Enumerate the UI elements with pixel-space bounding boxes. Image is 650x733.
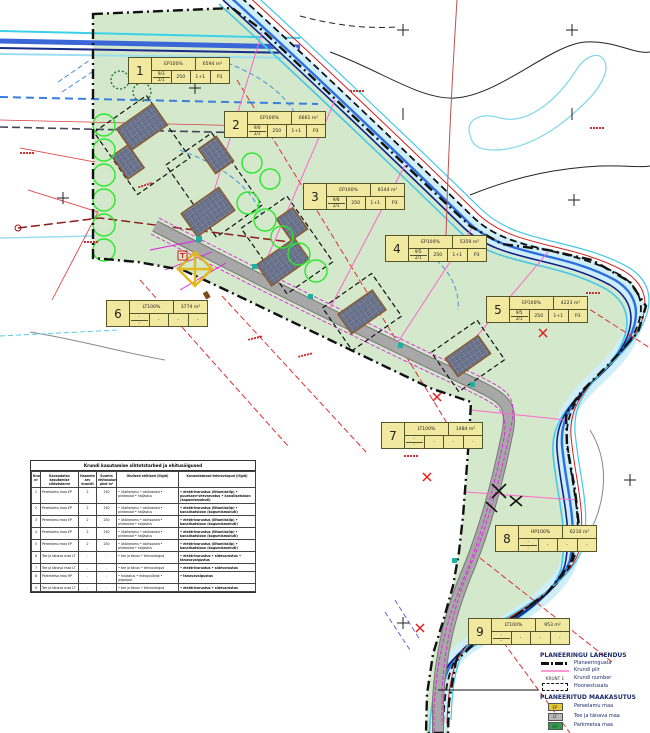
table-row: 3 Pereelamu maa EP 2 250 • üksikelamu • … — [32, 516, 256, 528]
col-header: Hoonete arv krundil — [79, 472, 97, 488]
legend-landuse-item: EP Pereelamu maa — [540, 703, 648, 711]
table-row: 1 Pereelamu maa EP 2 250 • üksikelamu • … — [32, 488, 256, 504]
cell-plot-nr: 5 — [32, 540, 41, 552]
legend-item-plot-number: KRUNT 1 Krundi number — [540, 676, 648, 682]
plot-label-5: 5 EP100%4223 m² 9/52/12501+1P3 — [486, 296, 588, 323]
cadastral-annotation — [404, 455, 419, 457]
cell-networks: • elektrivarustus • sidevarustus • tänav… — [179, 552, 256, 564]
table-row: 7 Tee ja tänava maa LT - - • tee ja täna… — [32, 564, 256, 572]
col-header: Kavandatav kasutamise sihtotstarve — [41, 472, 79, 488]
table-row: 9 Tee ja tänava maa LT - - • tee ja täna… — [32, 584, 256, 592]
cell-count: 2 — [79, 528, 97, 540]
landuse-color-box: EP — [548, 703, 563, 711]
col-header: Kavandatavad tehnovõrgud (liigid) — [179, 472, 256, 488]
cell-plot-nr: 8 — [32, 572, 41, 584]
plot-number: 6 — [107, 301, 130, 326]
cadastral-annotation — [84, 241, 99, 243]
legend-landuse-title: PLANEERITUD MAAKASUTUS — [540, 695, 648, 702]
table-row: 2 Pereelamu maa EP 2 250 • üksikelamu • … — [32, 504, 256, 516]
cell-buildings: • üksikelamu • abihooned • piirdeaiad • … — [117, 504, 179, 516]
cell-buildings: • tee ja tänav • tehnovõrgud — [117, 584, 179, 592]
table-row: 4 Pereelamu maa EP 2 250 • üksikelamu • … — [32, 528, 256, 540]
cell-count: - — [79, 564, 97, 572]
cell-networks: • elektrivarustus (liitumiskilp) • kanal… — [179, 516, 256, 528]
plot-number: 7 — [382, 423, 405, 448]
cell-plot-nr: 6 — [32, 552, 41, 564]
table-row: 8 Parkmetsa maa HP - - • haljastus • män… — [32, 572, 256, 584]
table-row: 5 Pereelamu maa EP 2 250 • üksikelamu • … — [32, 540, 256, 552]
plot-label-9: 9 LT100%953 m² ----- — [468, 618, 570, 645]
cell-area: - — [97, 564, 117, 572]
plot-label-7: 7 LT100%1484 m² ----- — [381, 422, 483, 449]
detailed-plan-drawing: 1 EP100%6594 m² 9/32/12501+1P1 2 EP100%6… — [0, 0, 650, 733]
cell-buildings: • üksikelamu • abihooned • piirdeaiad • … — [117, 540, 179, 552]
cell-use: Pereelamu maa EP — [41, 504, 79, 516]
plot-label-1: 1 EP100%6594 m² 9/32/12501+1P1 — [128, 57, 230, 84]
cell-use: Tee ja tänava maa LT — [41, 564, 79, 572]
cell-count: 2 — [79, 504, 97, 516]
cell-networks: • tänavavalgustus — [179, 572, 256, 584]
ditch-dashed — [0, 330, 118, 336]
cell-area: - — [97, 584, 117, 592]
cadastral-annotation — [350, 90, 365, 92]
legend-item-building-area: Hoonestusala — [540, 683, 648, 691]
cell-networks: • elektrivarustus • sidevarustus — [179, 564, 256, 572]
cell-use: Tee ja tänava maa LT — [41, 584, 79, 592]
plot-number: 8 — [496, 526, 519, 551]
left-cyan-line — [0, 236, 95, 238]
col-header: Krundi nr — [32, 472, 41, 488]
boundary-line-icon — [541, 662, 569, 665]
plot-number-symbol: KRUNT 1 — [540, 676, 570, 681]
cell-area: 250 — [97, 540, 117, 552]
plot-label-8: 8 HP100%6210 m² ----- — [495, 525, 597, 552]
pond-outline — [469, 55, 606, 150]
building-rights-table: Krundi kasutamise sihtotstarbed ja ehitu… — [30, 460, 256, 593]
cell-use: Tee ja tänava maa LT — [41, 552, 79, 564]
landuse-color-box: HP — [548, 722, 563, 730]
landuse-color-box: LT — [548, 713, 563, 721]
cell-plot-nr: 3 — [32, 516, 41, 528]
cell-plot-nr: 2 — [32, 504, 41, 516]
cell-buildings: • üksikelamu • abihooned • piirdeaiad • … — [117, 528, 179, 540]
cell-buildings: • üksikelamu • abihooned • piirdeaiad • … — [117, 488, 179, 504]
plot-number: 5 — [487, 297, 510, 322]
col-header: Olulised ehitised (liigid) — [117, 472, 179, 488]
cadastral-annotation — [586, 292, 601, 294]
cell-use: Pereelamu maa EP — [41, 540, 79, 552]
cell-buildings: • üksikelamu • abihooned • piirdeaiad • … — [117, 516, 179, 528]
legend-item-plot-border: Krundi piir — [540, 668, 648, 674]
cell-buildings: • tee ja tänav • tehnovõrgud — [117, 552, 179, 564]
cell-plot-nr: 4 — [32, 528, 41, 540]
cell-networks: • elektrivarustus (liitumiskilp) • kanal… — [179, 528, 256, 540]
cell-use: Pereelamu maa EP — [41, 488, 79, 504]
plot-label-6: 6 LT100%3774 m² ----- — [106, 300, 208, 327]
plot-number: 9 — [469, 619, 492, 644]
legend-title: PLANEERINGU LAHENDUS — [540, 652, 648, 659]
plot-label-3: 3 EP100%8144 m² 9/82/12501+1P3 — [303, 183, 405, 210]
cell-area: - — [97, 572, 117, 584]
plot-label-4: 4 EP100%5359 m² 9/52/12501+1P3 — [385, 235, 487, 262]
col-header: Suurim ehitusalune pind m² — [97, 472, 117, 488]
legend-landuse-item: HP Parkmetsa maa — [540, 722, 648, 730]
cell-area: 250 — [97, 488, 117, 504]
cell-plot-nr: 1 — [32, 488, 41, 504]
cell-count: - — [79, 552, 97, 564]
legend-item-boundary: Planeeringuala — [540, 661, 648, 667]
cell-networks: • elektrivarustus (liitumiskilp) • kanal… — [179, 540, 256, 552]
cell-use: Pereelamu maa EP — [41, 516, 79, 528]
cell-plot-nr: 9 — [32, 584, 41, 592]
cell-area: - — [97, 552, 117, 564]
cadastral-annotation — [20, 152, 35, 154]
cell-buildings: • haljastus • mänguväljak • jalgrajad — [117, 572, 179, 584]
cell-count: - — [79, 572, 97, 584]
plot-number: 3 — [304, 184, 327, 209]
cell-count: 2 — [79, 488, 97, 504]
cell-use: Parkmetsa maa HP — [41, 572, 79, 584]
legend-landuse-item: LT Tee ja tänava maa — [540, 713, 648, 721]
building-area-icon — [542, 683, 568, 691]
cell-area: 250 — [97, 516, 117, 528]
cell-count: 2 — [79, 540, 97, 552]
cadastral-annotation — [590, 127, 605, 129]
cell-networks: • elektrivarustus • sidevarustus — [179, 584, 256, 592]
cell-use: Pereelamu maa EP — [41, 528, 79, 540]
cell-count: 2 — [79, 516, 97, 528]
cell-area: 250 — [97, 504, 117, 516]
plot-number: 2 — [225, 112, 248, 137]
legend: PLANEERINGU LAHENDUS Planeeringuala Krun… — [540, 652, 648, 732]
table-title: Krundi kasutamise sihtotstarbed ja ehitu… — [31, 461, 255, 471]
table-header-row: Krundi nr Kavandatav kasutamise sihtotst… — [32, 472, 256, 488]
cell-networks: • elektrivarustus (liitumiskilp) • puurk… — [179, 488, 256, 504]
table-row: 6 Tee ja tänava maa LT - - • tee ja täna… — [32, 552, 256, 564]
cell-count: - — [79, 584, 97, 592]
plot-number: 4 — [386, 236, 409, 261]
cell-networks: • elektrivarustus (liitumiskilp) • kanal… — [179, 504, 256, 516]
cell-buildings: • tee ja tänav • tehnovõrgud — [117, 564, 179, 572]
plot-label-2: 2 EP100%6661 m² 9/02/12501+1P3 — [224, 111, 326, 138]
plot-number: 1 — [129, 58, 152, 83]
cell-area: 250 — [97, 528, 117, 540]
cell-plot-nr: 7 — [32, 564, 41, 572]
plot-border-line-icon — [541, 670, 569, 672]
